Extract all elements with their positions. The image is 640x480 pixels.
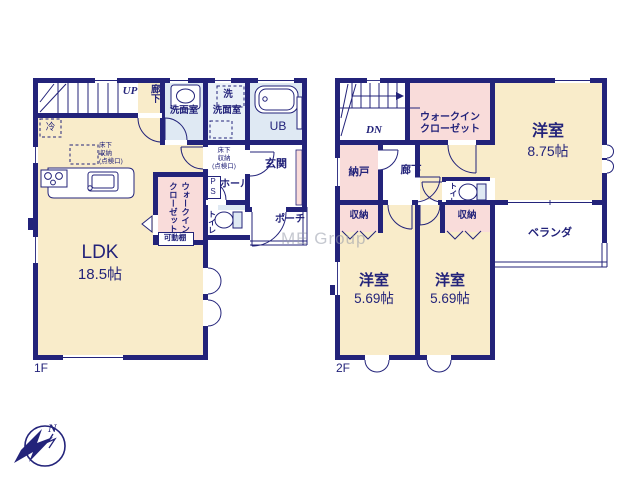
floorplan-canvas: N UP 廊下 冷 床下 収納 (点検口) 洗面室 洗 洗面室 UB 床下 収納… (0, 0, 640, 480)
pipe-space-box (207, 176, 221, 199)
toilet-tank-icon (233, 212, 242, 228)
watermark: ME Group (281, 229, 366, 249)
floor1-rooms (38, 83, 302, 355)
toilet-bowl-icon (459, 184, 477, 200)
floor1-stairs (40, 83, 118, 113)
movable-shelf-box (158, 232, 194, 246)
compass-north-label: N (47, 421, 58, 435)
toilet-tank-icon (477, 184, 486, 200)
stairs-arrow (396, 92, 404, 100)
compass-icon: N (14, 421, 65, 466)
bath-panel (297, 97, 302, 129)
floor1-plan (28, 78, 307, 360)
floor2-plan (330, 78, 614, 372)
toilet-bowl-icon (215, 212, 233, 228)
